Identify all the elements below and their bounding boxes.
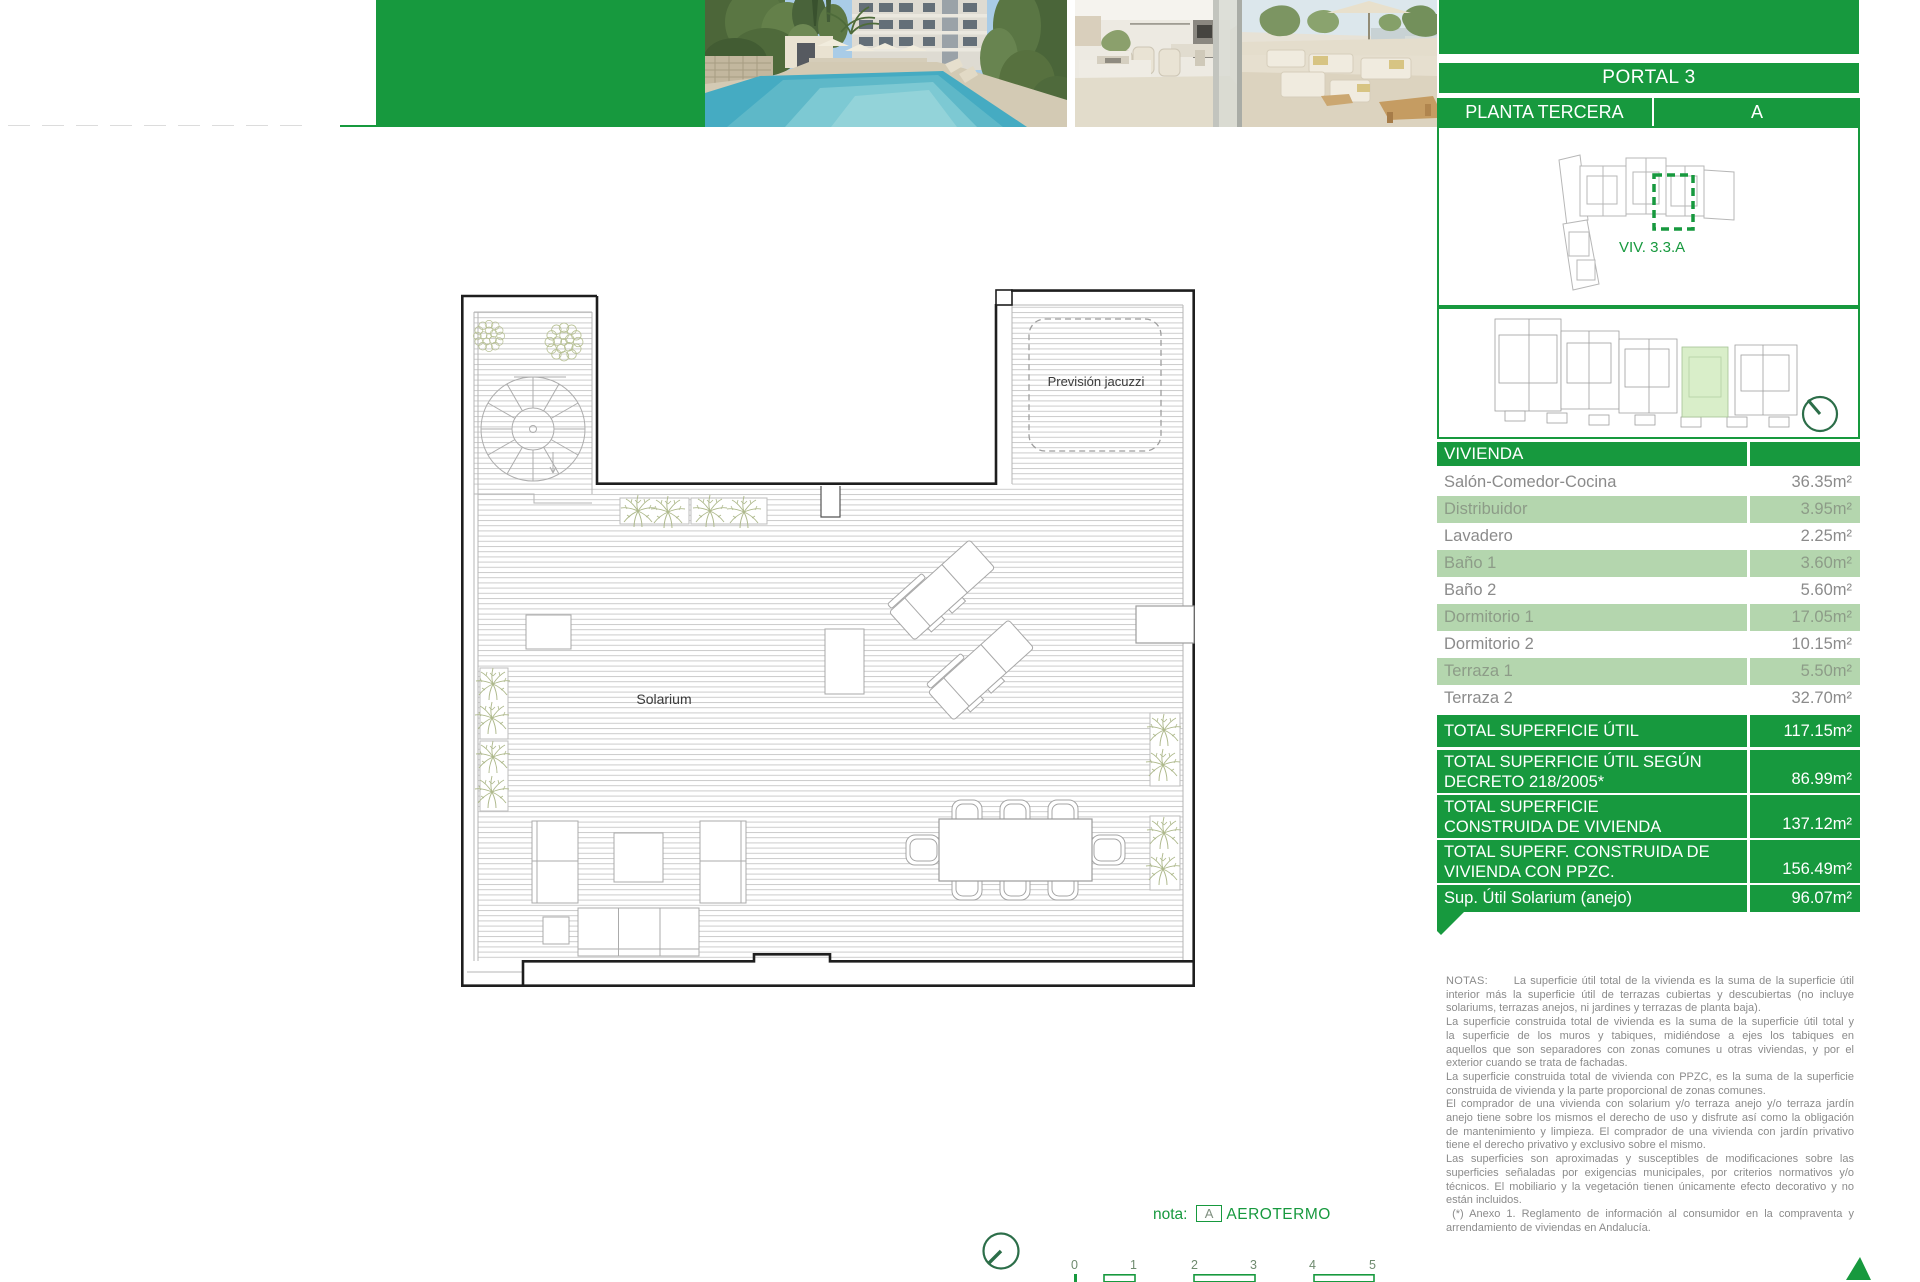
svg-text:VIV. 3.3.A: VIV. 3.3.A xyxy=(1619,239,1685,256)
svg-text:Previsión jacuzzi: Previsión jacuzzi xyxy=(1048,374,1145,389)
svg-text:Solarium: Solarium xyxy=(636,691,691,707)
